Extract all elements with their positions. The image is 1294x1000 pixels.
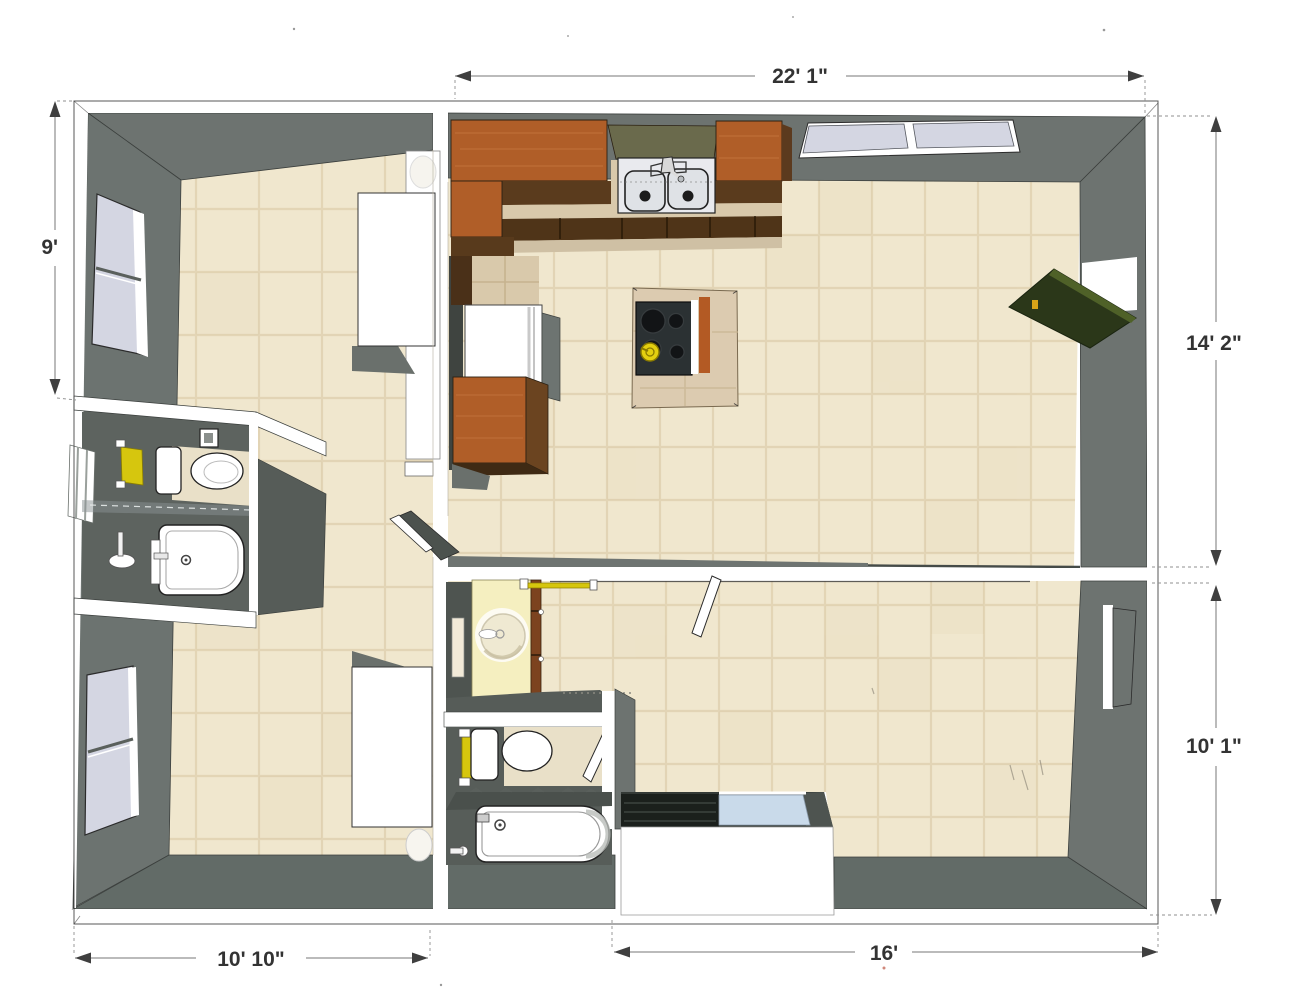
svg-text:22' 1": 22' 1" [772,65,828,88]
svg-text:9': 9' [41,236,58,259]
svg-text:10' 10": 10' 10" [217,948,285,971]
svg-text:14' 2": 14' 2" [1186,332,1242,355]
svg-text:10' 1": 10' 1" [1186,735,1242,758]
svg-text:16': 16' [870,942,898,965]
